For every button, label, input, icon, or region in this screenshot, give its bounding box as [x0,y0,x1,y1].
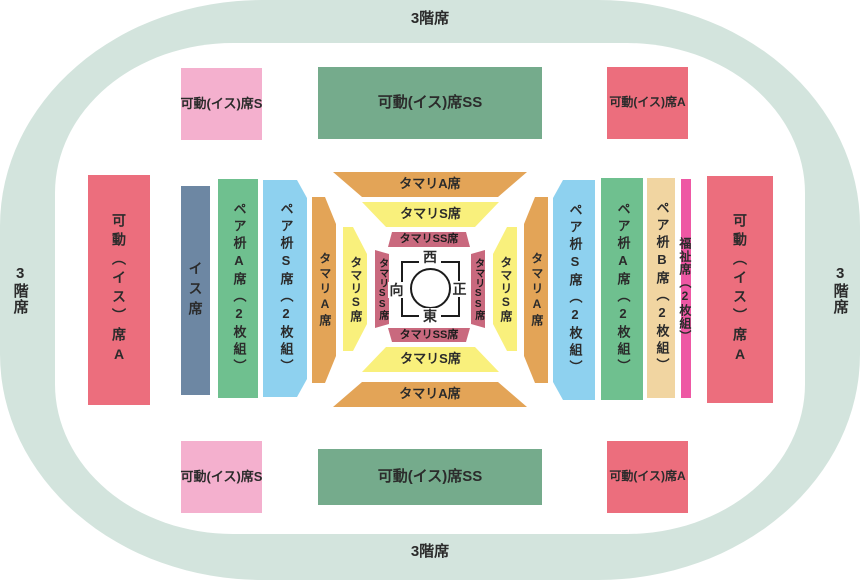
third-floor-label-left: 3階席 [6,255,34,325]
section-movable-chair-a-bottom[interactable]: 可動(イス)席A [607,441,688,513]
section-tamari-ss-bottom[interactable]: タマリSS席 [388,328,470,342]
direction-label-east: 東 [419,308,441,325]
section-pair-masu-s-left[interactable]: ペア枡S席︵2枚組︶ [263,180,307,397]
section-chair-seat[interactable]: イス席 [181,186,210,395]
third-floor-label-bottom: 3階席 [380,542,480,562]
direction-label-front: 正 [451,281,468,297]
section-tamari-ss-right[interactable]: タマリSS席 [471,250,485,328]
direction-label-opposite: 向 [388,282,405,298]
section-tamari-a-bottom[interactable]: タマリA席 [333,382,527,407]
section-movable-chair-a-right[interactable]: 可動︵イス︶席A [707,176,773,403]
section-tamari-a-left[interactable]: タマリA席 [312,197,336,383]
section-tamari-s-bottom[interactable]: タマリS席 [362,347,499,372]
section-welfare-seat-label: 福祉席︵2枚組︶ [671,228,697,352]
section-tamari-ss-left[interactable]: タマリSS席 [375,250,389,328]
third-floor-label-right: 3階席 [826,255,854,325]
dohyo-circle [410,268,451,309]
section-movable-chair-ss-top[interactable]: 可動(イス)席SS [318,67,542,139]
third-floor-label-top: 3階席 [380,9,480,29]
section-tamari-ss-top[interactable]: タマリSS席 [388,232,470,247]
sumo-arena-seating-map: 3階席 3階席 3階席 3階席 可動(イス)席S 可動(イス)席SS 可動(イス… [0,0,860,580]
section-pair-masu-a-left[interactable]: ペア枡A席︵2枚組︶ [218,179,258,398]
direction-label-west: 西 [419,249,441,265]
section-movable-chair-a-left[interactable]: 可動︵イス︶席A [88,175,150,405]
section-tamari-a-top[interactable]: タマリA席 [333,172,527,197]
section-movable-chair-a-top[interactable]: 可動(イス)席A [607,67,688,139]
section-pair-masu-s-right[interactable]: ペア枡S席︵2枚組︶ [553,180,595,400]
section-movable-chair-ss-bottom[interactable]: 可動(イス)席SS [318,449,542,505]
section-pair-masu-a-right[interactable]: ペア枡A席︵2枚組︶ [601,178,643,400]
section-tamari-a-right[interactable]: タマリA席 [524,197,548,383]
section-tamari-s-top[interactable]: タマリS席 [362,202,499,227]
section-movable-chair-s-top[interactable]: 可動(イス)席S [181,68,262,140]
section-movable-chair-s-bottom[interactable]: 可動(イス)席S [181,441,262,513]
